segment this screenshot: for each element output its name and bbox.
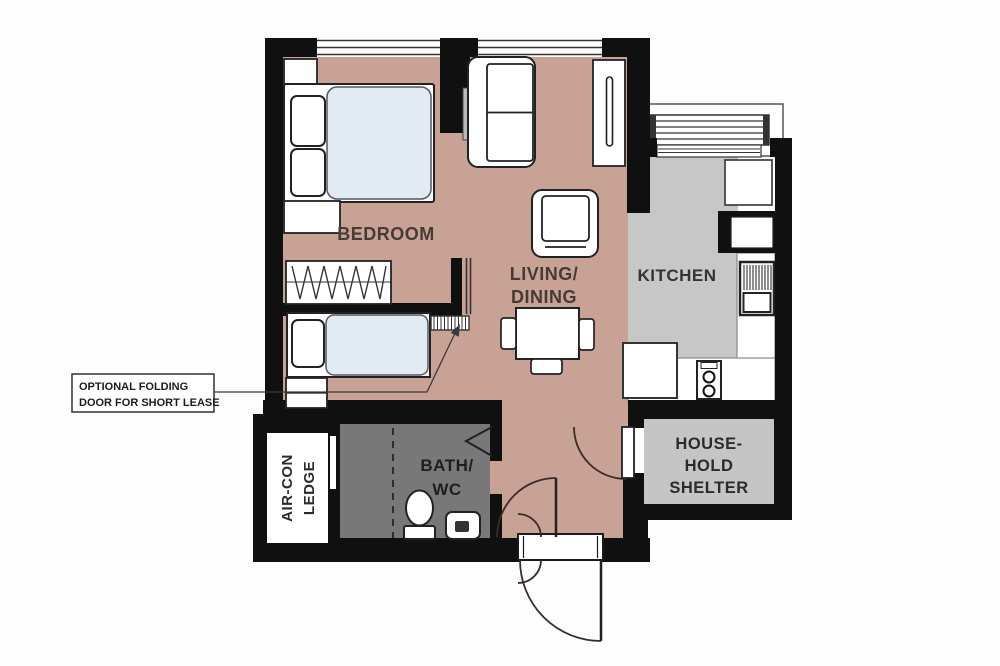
wall-partition-stub — [451, 258, 462, 316]
shelter-door-leaf — [622, 427, 634, 478]
service-area — [641, 104, 783, 157]
wall-service-left — [641, 138, 657, 157]
living-label-line1: LIVING/ — [510, 264, 579, 284]
floor-plan-drawing: BEDROOM LIVING/ DINING KITCHEN BATH/ WC … — [0, 0, 1000, 666]
floor-living-lower — [502, 400, 628, 538]
bath-label-line2: WC — [432, 480, 461, 499]
bedroom-label: BEDROOM — [337, 224, 435, 244]
floor-bath-doorway — [490, 461, 502, 494]
shelter-label-line2: HOLD — [685, 457, 734, 475]
kitchen-window — [657, 145, 761, 157]
cabinet-icon — [286, 378, 327, 408]
aircon-label-line2: LEDGE — [301, 461, 318, 515]
living-window — [478, 38, 602, 57]
kitchen-label: KITCHEN — [637, 266, 716, 285]
wall-kitchen-right — [775, 156, 792, 402]
bedroom-window — [317, 38, 440, 57]
shelter-label-line1: HOUSE- — [675, 435, 742, 453]
entrance-door-arc-outer — [520, 560, 601, 641]
single-bed-mattress — [326, 315, 428, 375]
bath-label-line1: BATH/ — [420, 456, 473, 475]
sofa-icon — [468, 57, 535, 167]
aircon-label-line1: AIR-CON — [279, 454, 296, 522]
annotation-line2: DOOR FOR SHORT LEASE — [79, 397, 220, 409]
tv-console-icon — [593, 60, 625, 166]
bedside-table-icon — [284, 59, 317, 85]
dining-chair-icon — [501, 318, 516, 349]
dining-chair-icon — [579, 319, 594, 350]
washer-icon — [725, 160, 772, 205]
wall-bottom-right — [601, 538, 650, 562]
pillow-icon — [291, 96, 325, 146]
kitchen-sink-icon — [740, 262, 774, 315]
drying-rack-post — [763, 115, 769, 145]
living-label-line2: DINING — [511, 287, 577, 307]
cooktop-icon — [697, 361, 721, 399]
wall-living-kitchen — [627, 38, 650, 213]
wall-service-right — [770, 138, 792, 157]
armchair-icon — [532, 190, 598, 257]
pillow-icon — [292, 320, 324, 367]
entrance-threshold — [518, 534, 603, 560]
wall-left — [265, 38, 283, 425]
folding-door-icon — [431, 316, 469, 330]
shelter-label-line3: SHELTER — [669, 479, 748, 497]
dining-chair-icon — [531, 359, 562, 374]
annotation-line1: OPTIONAL FOLDING — [79, 381, 188, 393]
toilet-icon — [404, 491, 435, 540]
kitchen-niche-window — [731, 217, 773, 248]
bench-icon — [284, 201, 340, 233]
double-bed-mattress — [327, 87, 431, 199]
ledge-window-slot — [330, 436, 336, 489]
tv-icon — [607, 77, 613, 146]
wardrobe-icon — [286, 261, 391, 304]
aircon-ledge-interior — [267, 433, 328, 543]
wash-basin-icon — [446, 512, 480, 539]
pillow-icon — [291, 149, 325, 196]
floor-plan: BEDROOM LIVING/ DINING KITCHEN BATH/ WC … — [0, 0, 1000, 666]
fridge-icon — [623, 343, 677, 398]
drying-rack-icon — [650, 115, 769, 145]
